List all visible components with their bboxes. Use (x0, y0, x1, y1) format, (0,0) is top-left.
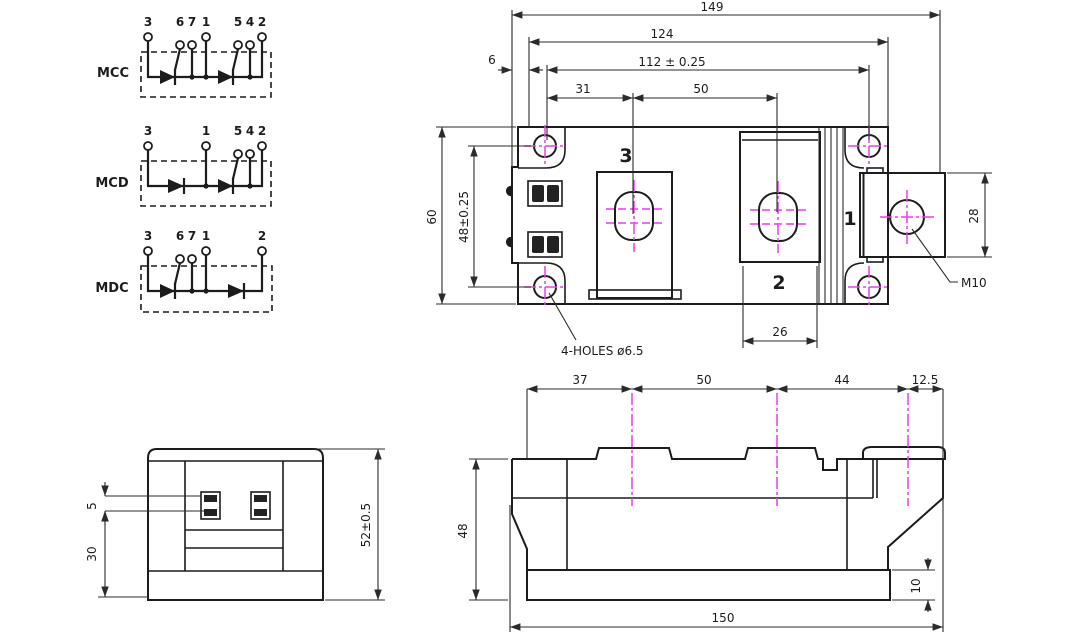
diode-symbol (228, 284, 244, 298)
thyristor-symbol (160, 284, 175, 298)
terminal-pin (176, 255, 184, 263)
gate-terminal-marking (547, 236, 559, 253)
circuit-schematics: MCC 3 6 7 1 5 4 2 (95, 15, 272, 312)
top-view: 3 2 1 149 124 112 ± 0.25 6 31 50 (425, 0, 992, 358)
terminal-number: 6 (176, 229, 184, 243)
dim-48-025: 48±0.25 (457, 191, 471, 243)
socket-tab (254, 509, 267, 516)
circuit-label-mcc: MCC (97, 66, 129, 81)
dim-50: 50 (693, 82, 708, 96)
circuit-label-mcd: MCD (95, 176, 128, 191)
terminal-stems (206, 150, 250, 186)
datasheet-outline-drawing: MCC 3 6 7 1 5 4 2 (0, 0, 1080, 636)
junction-dot (203, 183, 208, 188)
circuit-mcd: MCD 3 1 5 4 2 (95, 124, 271, 206)
terminal-number: 3 (144, 124, 152, 138)
terminal1-number: 1 (843, 208, 856, 230)
front-view: 5 30 52±0.5 (85, 449, 385, 600)
terminal1-cap (863, 447, 945, 459)
terminal-pin (234, 150, 242, 158)
gate-terminal-marking (547, 185, 559, 202)
side-inner-lines (512, 459, 877, 570)
front-center-bands (185, 530, 283, 548)
terminal-number: 7 (188, 229, 196, 243)
terminal-number: 2 (258, 124, 266, 138)
edge-bump (506, 186, 512, 196)
thyristor-symbol (218, 70, 233, 84)
m10-leader (912, 229, 958, 282)
gate-connector-block (528, 181, 562, 206)
terminal-number: 1 (202, 15, 210, 29)
dim-26: 26 (772, 325, 787, 339)
terminal-pin (258, 247, 266, 255)
junction-dot (203, 74, 208, 79)
dim-112: 112 ± 0.25 (638, 55, 705, 69)
socket-tab (204, 495, 217, 502)
diode-symbol (168, 179, 184, 193)
terminal-pin (246, 41, 254, 49)
dim-6: 6 (488, 53, 496, 67)
holes-note: 4-HOLES ø6.5 (561, 344, 644, 358)
terminal-pin (144, 33, 152, 41)
dim-30: 30 (85, 546, 99, 561)
drawing-canvas: MCC 3 6 7 1 5 4 2 (0, 0, 1080, 636)
terminal-pin (258, 142, 266, 150)
terminal-number: 5 (234, 15, 242, 29)
terminal-number: 3 (144, 15, 152, 29)
terminal-pin (202, 247, 210, 255)
circuit-mdc: MDC 3 6 7 1 2 (95, 229, 272, 312)
terminal3-number: 3 (619, 145, 632, 167)
gate-connector-block (528, 232, 562, 257)
dim-31: 31 (575, 82, 590, 96)
thyristor-symbol (160, 70, 175, 84)
gate-terminal-marking (532, 185, 544, 202)
dim-12-5: 12.5 (912, 373, 939, 387)
m10-label: M10 (961, 276, 987, 290)
dim-50b: 50 (696, 373, 711, 387)
gate-socket (251, 492, 270, 519)
terminal-number: 6 (176, 15, 184, 29)
flange-corner (845, 127, 864, 168)
terminal2-block (740, 132, 820, 262)
gate-socket (201, 492, 220, 519)
gate-terminal-marking (532, 236, 544, 253)
terminal2-number: 2 (772, 272, 785, 294)
dim-149: 149 (701, 0, 724, 14)
socket-tab (254, 495, 267, 502)
terminal1-block (860, 168, 945, 262)
junction-dot (247, 74, 252, 79)
terminal-pin (144, 247, 152, 255)
dim-124: 124 (651, 27, 674, 41)
circuit-mcc: MCC 3 6 7 1 5 4 2 (97, 15, 271, 97)
edge-bump (506, 237, 512, 247)
terminal-pin (202, 33, 210, 41)
terminal-pin (188, 255, 196, 263)
terminal-number: 4 (246, 15, 254, 29)
dim-37: 37 (572, 373, 587, 387)
mounting-holes (524, 125, 890, 308)
terminal-pin (176, 41, 184, 49)
dim-5: 5 (85, 502, 99, 510)
terminal-pin (188, 41, 196, 49)
terminal-number: 5 (234, 124, 242, 138)
dim-52: 52±0.5 (359, 503, 373, 547)
front-columns (185, 461, 283, 571)
baseplate (527, 570, 890, 600)
side-view-dimensions: 37 50 44 12.5 48 10 150 (456, 373, 943, 632)
junction-dot (247, 183, 252, 188)
dim-150: 150 (712, 611, 735, 625)
circuit-label-mdc: MDC (95, 281, 128, 296)
centerline-cross (848, 266, 890, 308)
terminal-number: 1 (202, 229, 210, 243)
dim-60: 60 (425, 209, 439, 224)
terminal-centerlines (632, 393, 908, 506)
terminal-pin (246, 150, 254, 158)
front-view-dimensions: 5 30 52±0.5 (85, 449, 385, 600)
junction-dot (189, 74, 194, 79)
dim-48: 48 (456, 523, 470, 538)
side-view: 37 50 44 12.5 48 10 150 (456, 373, 945, 632)
terminal-number: 3 (144, 229, 152, 243)
terminal-pin (234, 41, 242, 49)
terminal-number: 2 (258, 229, 266, 243)
holes-leader (549, 293, 576, 340)
terminal-number: 7 (188, 15, 196, 29)
fin-slot-lines (819, 128, 843, 303)
module-body-outline (512, 127, 888, 304)
terminal-pin (258, 33, 266, 41)
terminal-number: 4 (246, 124, 254, 138)
terminal-number: 1 (202, 124, 210, 138)
terminal-pin (202, 142, 210, 150)
dim-28: 28 (967, 208, 981, 223)
terminal-pin (144, 142, 152, 150)
dim-44: 44 (834, 373, 849, 387)
side-body-outline (512, 448, 943, 570)
terminal3-block (589, 172, 681, 299)
front-outline (148, 449, 323, 600)
thyristor-symbol (218, 179, 233, 193)
junction-dot (189, 288, 194, 293)
junction-dot (203, 288, 208, 293)
terminal-number: 2 (258, 15, 266, 29)
flange-corner (518, 127, 565, 168)
dim-10: 10 (909, 578, 923, 593)
socket-tab (204, 509, 217, 516)
flange-corner (845, 263, 864, 304)
